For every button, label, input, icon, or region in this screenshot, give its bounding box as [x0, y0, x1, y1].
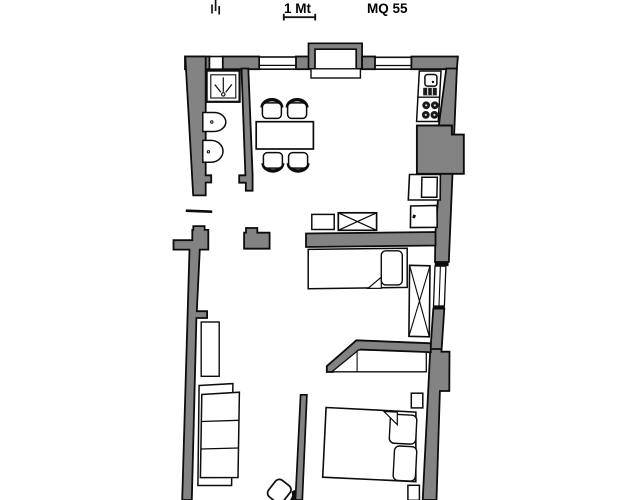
svg-text:MQ 55: MQ 55 — [367, 1, 408, 16]
svg-text:1 Mt: 1 Mt — [284, 1, 312, 16]
